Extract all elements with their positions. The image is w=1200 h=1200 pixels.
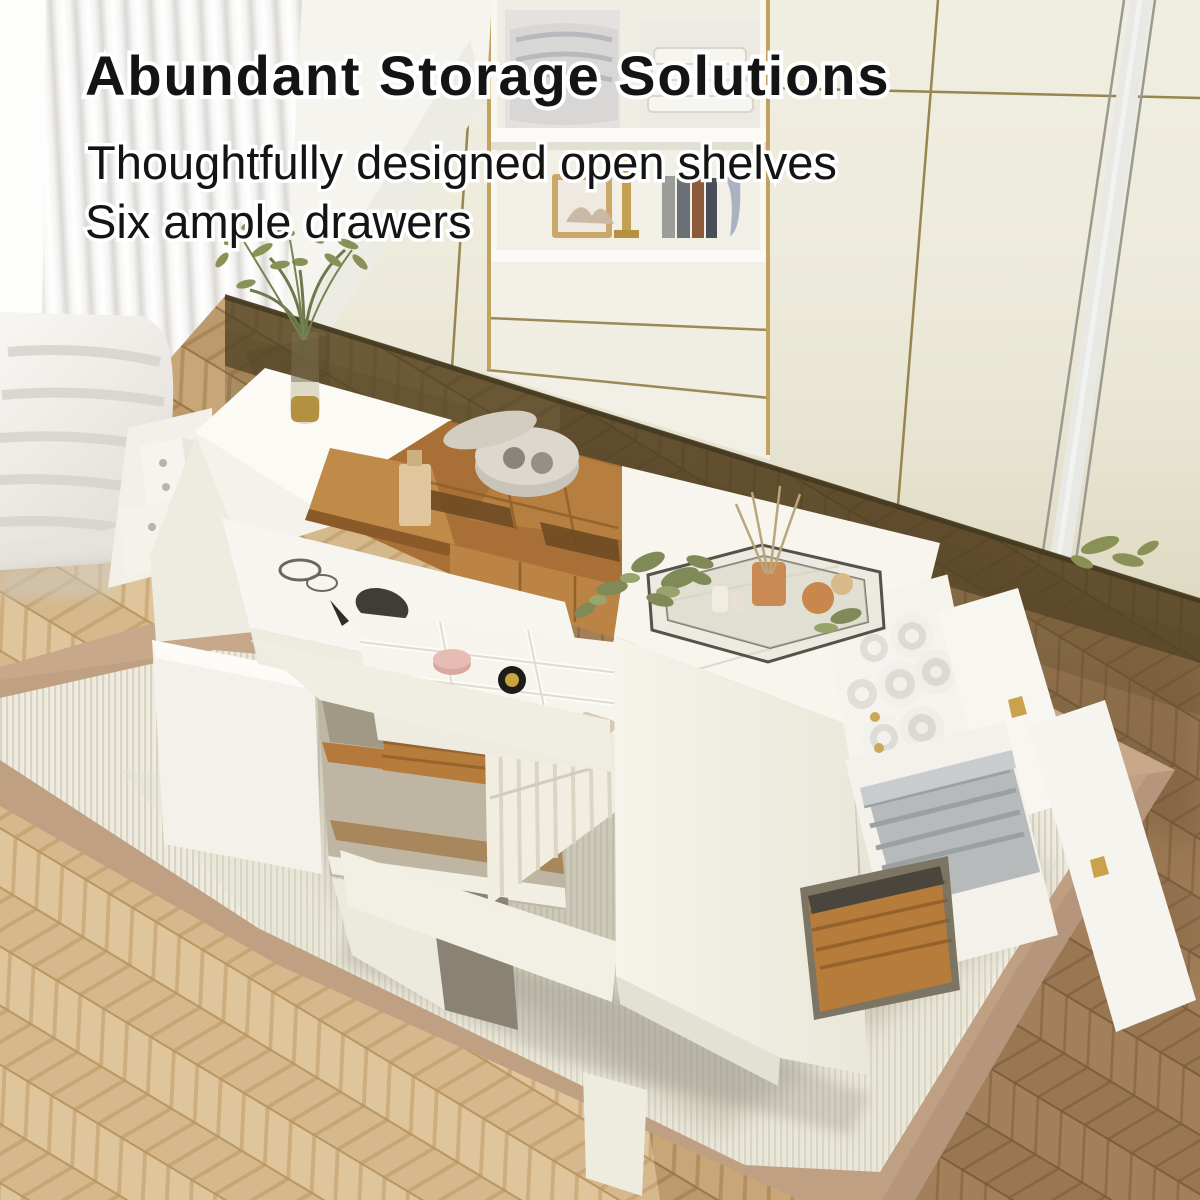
svg-text:Abundant Storage Solutions: Abundant Storage Solutions bbox=[85, 44, 890, 107]
svg-text:Thoughtfully designed open she: Thoughtfully designed open shelves bbox=[87, 136, 837, 189]
svg-text:Six ample drawers: Six ample drawers bbox=[85, 195, 472, 248]
